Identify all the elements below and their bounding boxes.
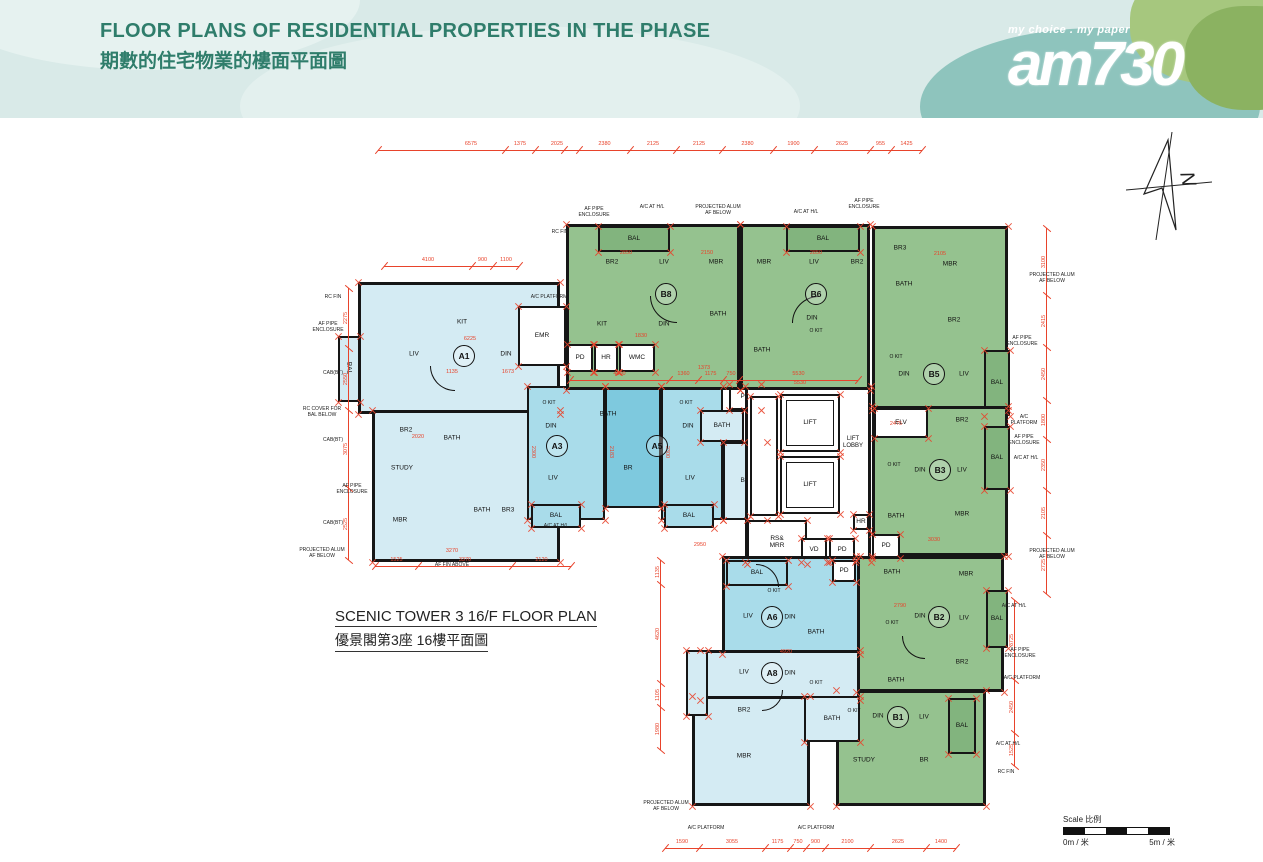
plan-annotation: A/C PLATFORM xyxy=(1011,414,1038,426)
unit-badge-b3: B3 xyxy=(929,459,951,481)
room-label: LIV xyxy=(959,370,969,377)
dimension-chain-h: 41009001100 xyxy=(384,257,519,273)
room-label: HR xyxy=(856,518,865,525)
room-label: HR xyxy=(601,354,610,361)
room-label: BR2 xyxy=(956,416,969,423)
room-label: LIV xyxy=(409,350,419,357)
room-label: O KIT xyxy=(889,355,902,361)
room-label: O KIT xyxy=(885,621,898,627)
dimension-label: 2183 xyxy=(608,446,614,458)
room-label: O KIT xyxy=(809,329,822,335)
dimension-label: 2300 xyxy=(530,446,536,458)
room-label: MBR xyxy=(737,752,751,759)
plan-annotation: PROJECTED ALUM AF BELOW xyxy=(1029,272,1074,284)
room-label: BAL xyxy=(991,454,1003,461)
room-label: O KIT xyxy=(887,463,900,469)
room-label: RS& MRR xyxy=(770,535,785,549)
plan-annotation: CAB(BT) xyxy=(323,437,343,443)
room-emr: EMR xyxy=(518,306,566,366)
unit-badge-a8: A8 xyxy=(761,662,783,684)
room-label: STUDY xyxy=(391,464,413,471)
room-label: BATH xyxy=(444,434,461,441)
plan-annotation: RC FIN xyxy=(998,769,1015,775)
dimension-chain-h: 137520252380212521252380190026259551425 xyxy=(505,141,922,157)
plan-annotation: AF PIPE ENCLOSURE xyxy=(336,483,367,495)
dimension-label: 3270 xyxy=(446,548,458,554)
room-label: BATH xyxy=(754,346,771,353)
plan-annotation: AF PIPE ENCLOSURE xyxy=(1008,434,1039,446)
dimension-label: 2790 xyxy=(894,603,906,609)
north-arrow-icon: N xyxy=(1126,132,1212,240)
plan-annotation: A/C PLATFORM xyxy=(1004,675,1041,681)
room-label: BR xyxy=(623,464,632,471)
room-label: O KIT xyxy=(679,401,692,407)
room-b8-wmc: WMC xyxy=(619,344,655,372)
plan-annotation: AF PIPE ENCLOSURE xyxy=(848,198,879,210)
room-label: BR xyxy=(919,756,928,763)
scale-bar: Scale 比例 0m / 米 5m / 米 xyxy=(1063,814,1175,848)
room-label: VD xyxy=(809,546,818,553)
plan-annotation: A/C AT H/L xyxy=(1014,455,1039,461)
room-label: BATH xyxy=(714,422,731,429)
room-label: MBR xyxy=(959,570,973,577)
dimension-label: 2105 xyxy=(934,251,946,257)
plan-annotation: A/C AT H/L xyxy=(794,209,819,215)
room-label: LIV xyxy=(959,614,969,621)
dimension-label: 1135 xyxy=(446,369,458,375)
room-label: LIV xyxy=(919,713,929,720)
room-label: BR2 xyxy=(851,258,864,265)
room-label: LIV xyxy=(685,474,695,481)
unit-badge-b1: B1 xyxy=(887,706,909,728)
room-label: BR3 xyxy=(502,506,515,513)
plan-annotation: CAB(BT) xyxy=(323,370,343,376)
room-label: BATH xyxy=(888,512,905,519)
dimension-chain-h: 152533702120 xyxy=(375,557,571,573)
room-label: BR2 xyxy=(738,706,751,713)
plan-annotation: CAB(BT) xyxy=(323,520,343,526)
room-label: LIV xyxy=(809,258,819,265)
room-label: BR2 xyxy=(948,316,961,323)
room-label: STUDY xyxy=(853,756,875,763)
plan-annotation: RC COVER FOR BAL BELOW xyxy=(303,406,341,418)
room-label: MBR xyxy=(955,510,969,517)
room-label: BATH xyxy=(884,568,901,575)
room-label: LIV xyxy=(548,474,558,481)
room-label: BATH xyxy=(888,676,905,683)
room-b8-hr: HR xyxy=(594,344,618,372)
dimension-chain-v: 1135462011051980 xyxy=(651,560,667,750)
plan-annotation: A/C AT H/L xyxy=(1002,603,1027,609)
room-label: BR3 xyxy=(894,244,907,251)
plan-annotation: A/C PLATFORM xyxy=(688,825,725,831)
room-label: BR2 xyxy=(956,658,969,665)
room-label: DIN xyxy=(682,422,693,429)
room-label: PD xyxy=(839,567,848,574)
room-label: DIN xyxy=(914,612,925,619)
room-label: DIN xyxy=(898,370,909,377)
plan-caption: SCENIC TOWER 3 16/F FLOOR PLAN 優景閣第3座 16… xyxy=(335,608,597,652)
dimension-label: 2150 xyxy=(701,250,713,256)
dimension-label: 1830 xyxy=(635,333,647,339)
plan-annotation: RC FIN xyxy=(325,294,342,300)
plan-annotation: AF PIPE ENCLOSURE xyxy=(312,321,343,333)
room-label: O KIT xyxy=(767,589,780,595)
room-label: DIN xyxy=(806,314,817,321)
page: { "header": { "title_en": "FLOOR PLANS O… xyxy=(0,0,1263,862)
dimension-label: 1373 xyxy=(698,365,710,371)
room-label: LIFT xyxy=(803,481,816,488)
dimension-label: 5530 xyxy=(794,380,806,386)
room-label: BATH xyxy=(474,506,491,513)
room-label: KIT xyxy=(597,320,607,327)
room-label: KIT xyxy=(457,318,467,325)
room-label: LIFT LOBBY xyxy=(843,436,863,450)
room-label: BAL xyxy=(683,512,695,519)
room-label: BR2 xyxy=(400,426,413,433)
dimension-chain-h: 159030551175750900210026251400 xyxy=(665,839,956,855)
room-label: LIV xyxy=(957,466,967,473)
room-label: DIN xyxy=(784,669,795,676)
plan-annotation: PROJECTED ALUM AF BELOW xyxy=(643,800,688,812)
room-label: BATH xyxy=(600,410,617,417)
svg-text:N: N xyxy=(1175,170,1200,189)
dimension-label: 2850 xyxy=(620,250,632,256)
plan-annotation: PROJECTED ALUM AF BELOW xyxy=(695,204,740,216)
plan-annotation: RC FIN xyxy=(552,229,569,235)
room-label: BR2 xyxy=(606,258,619,265)
room-lift-2: LIFT xyxy=(780,456,840,514)
room-label: PD xyxy=(837,546,846,553)
dimension-label: 2850 xyxy=(810,250,822,256)
plan-annotation: AF PIPE ENCLOSURE xyxy=(1006,335,1037,347)
room-a8-balcony xyxy=(686,650,708,716)
room-b3-balcony: BAL xyxy=(984,426,1010,490)
room-label: O KIT xyxy=(847,709,860,715)
scale-left: 0m / 米 xyxy=(1063,837,1089,848)
dimension-label: 3030 xyxy=(928,537,940,543)
unit-badge-b6: B6 xyxy=(805,283,827,305)
scale-label: Scale 比例 xyxy=(1063,814,1175,825)
unit-badge-b2: B2 xyxy=(928,606,950,628)
dimension-label: 2950 xyxy=(694,542,706,548)
room-label: O KIT xyxy=(542,401,555,407)
room-label: O KIT xyxy=(809,681,822,687)
caption-en: SCENIC TOWER 3 16/F FLOOR PLAN xyxy=(335,608,597,627)
unit-badge-b8: B8 xyxy=(655,283,677,305)
room-label: MBR xyxy=(393,516,407,523)
room-label: BAL xyxy=(991,379,1003,386)
unit-badge-a6: A6 xyxy=(761,606,783,628)
plan-annotation: A/C PLATFORM xyxy=(798,825,835,831)
room-label: DIN xyxy=(500,350,511,357)
room-label: BATH xyxy=(808,628,825,635)
room-b1-balcony: BAL xyxy=(948,698,976,754)
room-b6-balcony: BAL xyxy=(786,226,860,252)
room-label: LIFT xyxy=(803,419,816,426)
room-label: MBR xyxy=(757,258,771,265)
room-label: BAL xyxy=(817,235,829,242)
dimension-label: 6225 xyxy=(464,336,476,342)
room-label: DIN xyxy=(872,712,883,719)
plan-annotation: A/C PLATFORM xyxy=(531,294,568,300)
plan-annotation: AF PIPE ENCLOSURE xyxy=(1004,647,1035,659)
room-label: DIN xyxy=(784,613,795,620)
room-label: BAL xyxy=(628,235,640,242)
scale-bar-graphic xyxy=(1063,827,1170,835)
room-label: DIN xyxy=(545,422,556,429)
unit-badge-a5: A5 xyxy=(646,435,668,457)
room-label: WMC xyxy=(629,354,645,361)
room-label: PD xyxy=(881,542,890,549)
room-a5-balcony: BAL xyxy=(664,504,714,528)
dimension-label: 2475 xyxy=(890,421,902,427)
room-label: BAL xyxy=(956,722,968,729)
plan-annotation: PROJECTED ALUM AF BELOW xyxy=(1029,548,1074,560)
room-label: BAL xyxy=(550,512,562,519)
room-label: MBR xyxy=(943,260,957,267)
room-label: PD xyxy=(575,354,584,361)
plan-annotation: AF PIPE ENCLOSURE xyxy=(578,206,609,218)
plan-annotation: A/C AT H/L xyxy=(544,523,569,529)
unit-badge-b5: B5 xyxy=(923,363,945,385)
room-label: BAL xyxy=(991,615,1003,622)
floor-plan: EMRBALBALBATHPDBRLIFTLIFTRS& MRRVDPDHRBA… xyxy=(0,0,1263,862)
scale-right: 5m / 米 xyxy=(1149,837,1175,848)
room-label: LIV xyxy=(659,258,669,265)
caption-zh: 優景閣第3座 16樓平面圖 xyxy=(335,630,488,652)
room-label: MBR xyxy=(709,258,723,265)
room-label: BATH xyxy=(710,310,727,317)
plan-annotation: A/C AT H/L xyxy=(640,204,665,210)
unit-badge-a3: A3 xyxy=(546,435,568,457)
room-label: DIN xyxy=(914,466,925,473)
room-a8-bath: BATH xyxy=(804,696,860,742)
room-label: LIV xyxy=(743,612,753,619)
dimension-label: 2020 xyxy=(412,434,424,440)
dimension-chain-h: 4600136011757505530 xyxy=(570,371,858,387)
unit-badge-a1: A1 xyxy=(453,345,475,367)
room-label: EMR xyxy=(535,332,549,339)
plan-annotation: AF FIN ABOVE xyxy=(435,562,469,568)
room-lift-1: LIFT xyxy=(780,394,840,452)
dimension-label: 1673 xyxy=(502,369,514,375)
dimension-label: 4920 xyxy=(780,649,792,655)
room-label: BATH xyxy=(896,280,913,287)
plan-annotation: A/C AT H/L xyxy=(996,741,1021,747)
room-label: BATH xyxy=(824,715,841,722)
room-label: LIV xyxy=(739,668,749,675)
plan-annotation: PROJECTED ALUM AF BELOW xyxy=(299,547,344,559)
room-unit-a3 xyxy=(527,386,605,520)
room-label: DIN xyxy=(658,320,669,327)
room-b8-balcony: BAL xyxy=(598,226,670,252)
